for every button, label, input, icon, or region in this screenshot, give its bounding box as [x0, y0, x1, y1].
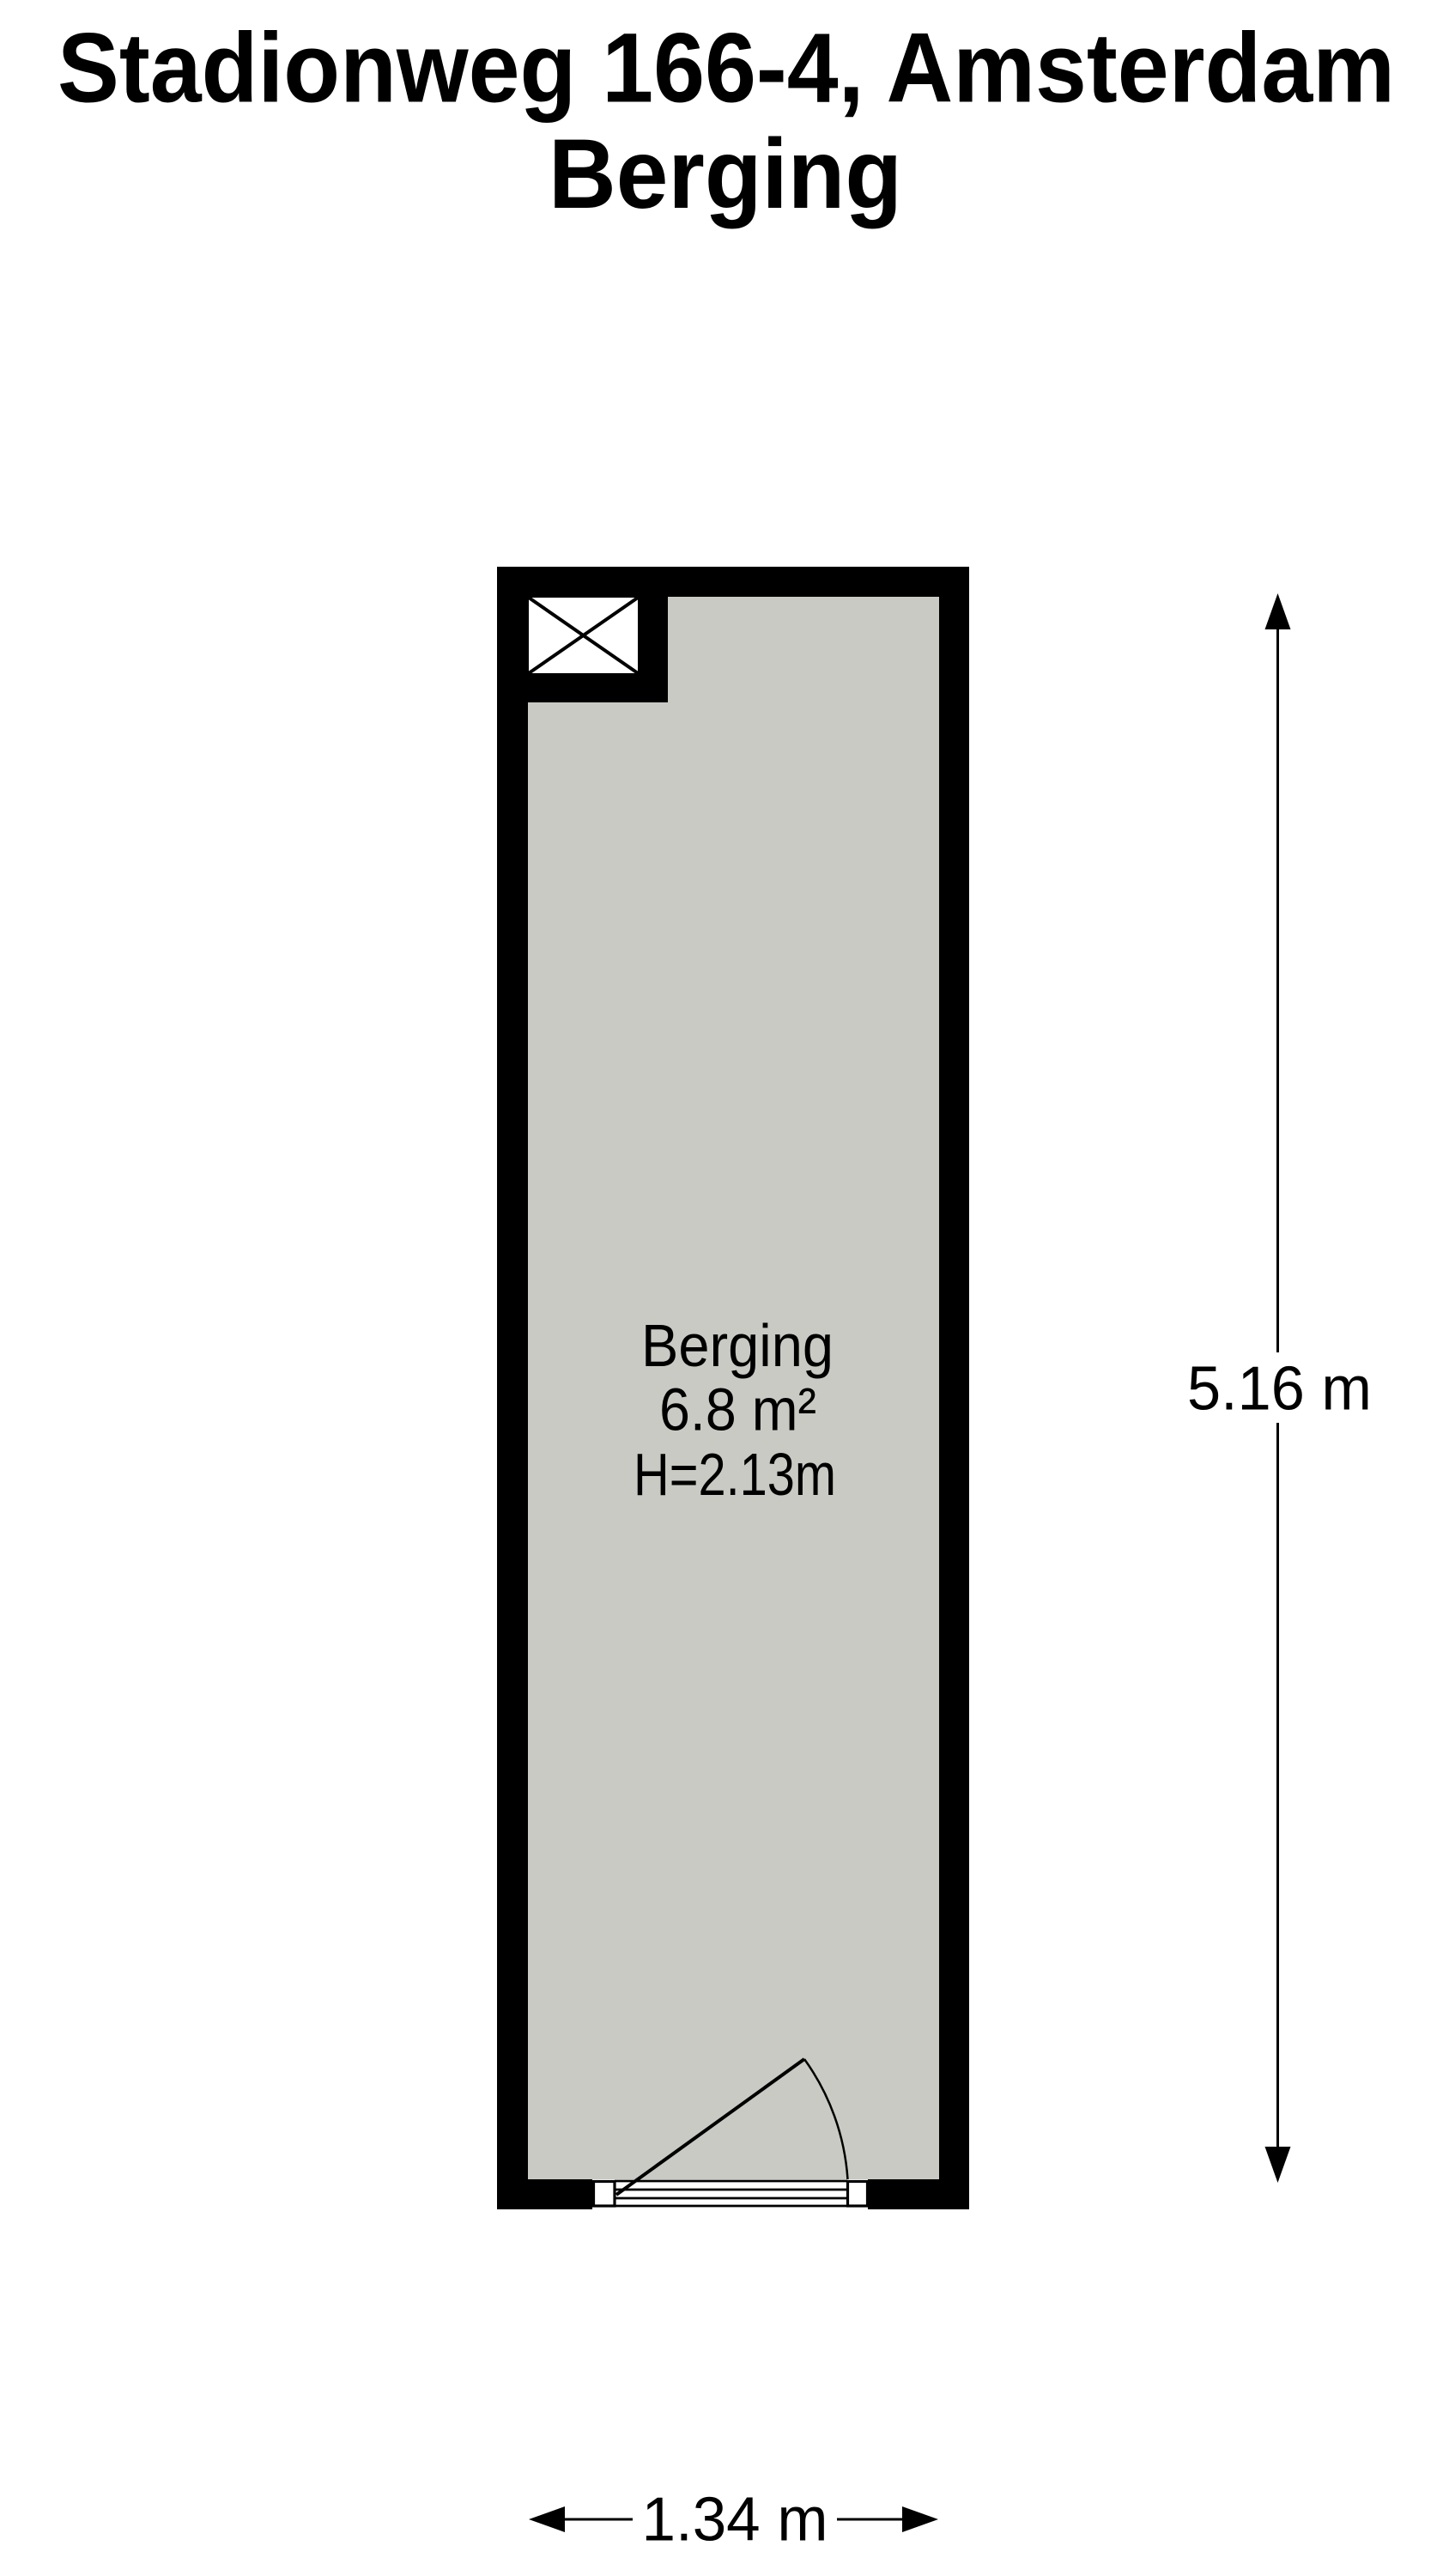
- svg-text:1.34 m: 1.34 m: [642, 2486, 828, 2555]
- svg-text:6.8 m²: 6.8 m²: [659, 1376, 816, 1443]
- svg-text:Berging: Berging: [549, 119, 902, 229]
- svg-text:H=2.13m: H=2.13m: [634, 1441, 836, 1508]
- svg-text:5.16 m: 5.16 m: [1187, 1355, 1372, 1424]
- svg-text:Stadionweg 166-4, Amsterdam: Stadionweg 166-4, Amsterdam: [58, 14, 1395, 124]
- svg-text:Berging: Berging: [641, 1312, 834, 1379]
